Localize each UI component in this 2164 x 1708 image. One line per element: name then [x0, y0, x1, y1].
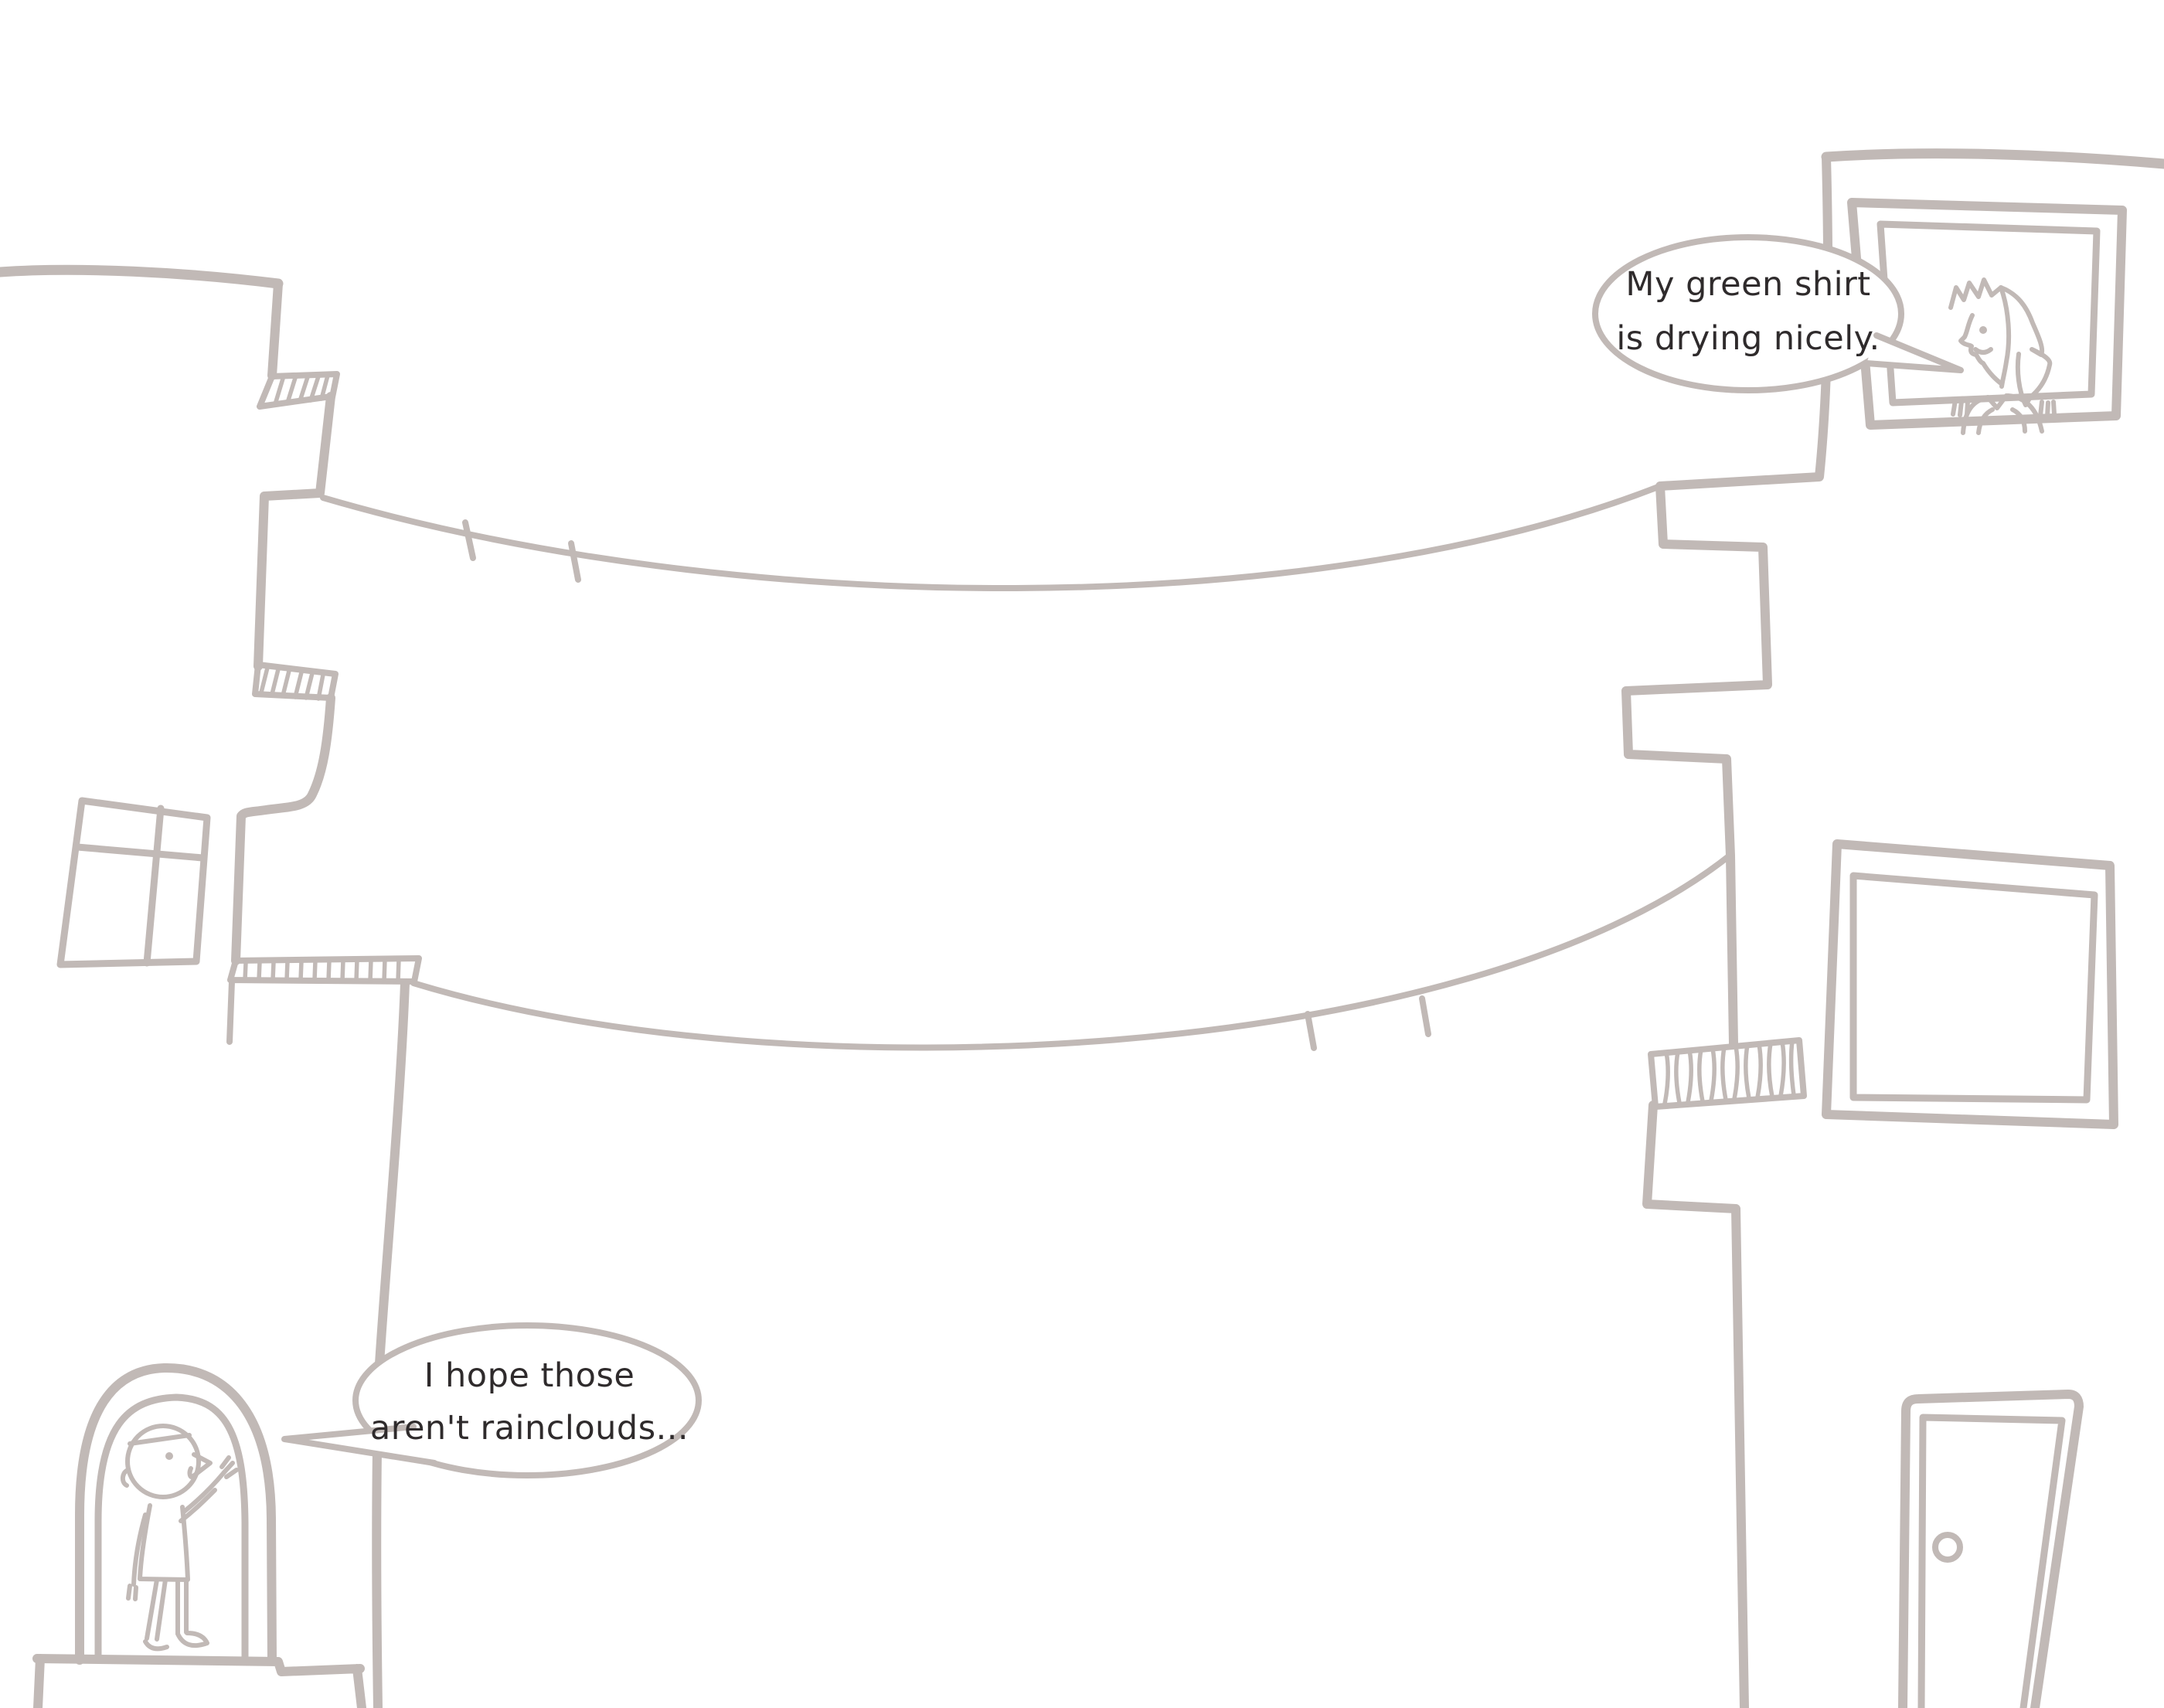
bubble-body — [1595, 237, 1901, 390]
bubble-tail — [1866, 335, 1961, 370]
left-building-wall-upper — [272, 284, 278, 376]
clothespin — [1308, 1014, 1314, 1048]
porch-edge — [37, 1659, 362, 1708]
left-building-wall-step1 — [258, 396, 331, 666]
man-figure — [123, 1426, 236, 1648]
clothesline-bottom — [413, 856, 1730, 1048]
illustration-canvas: My green shirt is drying nicely. I hope … — [0, 0, 2164, 1708]
man-eye — [165, 1452, 173, 1460]
bubble-text-line: I hope those — [424, 1356, 635, 1395]
clothesline-wire — [323, 486, 1660, 588]
man-ear — [123, 1470, 128, 1485]
clothespin — [1422, 999, 1428, 1034]
clothesline-wire — [413, 856, 1730, 1047]
left-ledge-middle — [255, 665, 335, 699]
woman-hairline — [2001, 288, 2009, 386]
man-legs — [147, 1580, 186, 1639]
clothesline-top — [323, 486, 1660, 588]
left-building-wall-jog — [236, 698, 331, 961]
left-building-wall-lower — [376, 983, 405, 1708]
woman-hand-left — [1953, 400, 1968, 415]
right-door — [1903, 1394, 2079, 1708]
window-inner-frame — [1880, 224, 2097, 403]
clothespin — [465, 522, 473, 558]
window-mullion-horizontal — [77, 847, 202, 858]
woman-smile — [1975, 349, 1991, 352]
window-frame — [60, 801, 207, 965]
window-inner-frame — [1853, 876, 2094, 1100]
clothespin — [571, 543, 578, 580]
speech-bubble-man: I hope those aren't rainclouds... — [284, 1325, 699, 1475]
left-building-roof — [0, 270, 278, 284]
man-hand-raised — [222, 1458, 236, 1477]
left-ledge-top — [260, 374, 337, 407]
woman-eye — [1979, 326, 1987, 334]
left-window — [60, 801, 207, 965]
bubble-text-line: aren't rainclouds... — [370, 1409, 689, 1448]
man-hand-side — [128, 1586, 136, 1599]
woman-face — [1961, 315, 2002, 384]
bubble-text-line: is drying nicely. — [1616, 319, 1880, 358]
man-feet — [145, 1633, 207, 1648]
ledge-hatch — [275, 376, 328, 404]
left-ledge-long — [230, 958, 419, 1042]
window-mullion-vertical — [147, 808, 161, 963]
clothesline-scene: My green shirt is drying nicely. I hope … — [0, 0, 2164, 1708]
bubble-text-line: My green shirt — [1625, 265, 1870, 304]
right-ledge — [1651, 1040, 1804, 1107]
right-building-wall-lower — [1647, 1105, 1744, 1708]
porch — [37, 1659, 362, 1708]
speech-bubble-woman: My green shirt is drying nicely. — [1595, 237, 1961, 390]
right-window-middle — [1826, 844, 2114, 1124]
woman-hand-right — [2040, 402, 2054, 417]
door-outer-frame — [1903, 1394, 2079, 1708]
woman-figure — [1951, 280, 2054, 433]
door-knob — [1935, 1535, 1960, 1560]
right-building-roof — [1826, 154, 2164, 164]
man-arm-raised — [181, 1472, 224, 1521]
